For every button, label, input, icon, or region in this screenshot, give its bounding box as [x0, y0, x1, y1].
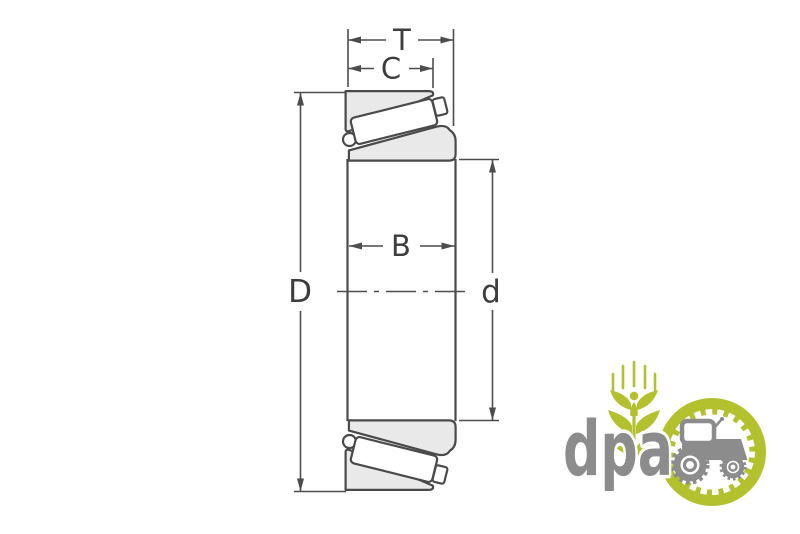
- brand-text: dpa: [563, 404, 673, 493]
- arrowhead-right: [420, 65, 433, 72]
- dimension-B: B: [349, 229, 455, 263]
- tractor-icon: [673, 417, 748, 483]
- arrowhead-right: [441, 37, 454, 44]
- dimension-d: d: [459, 160, 501, 421]
- arrowhead-left: [348, 37, 361, 44]
- arrowhead-right: [442, 243, 455, 250]
- arrowhead-bottom: [489, 408, 496, 421]
- label-cone-width: B: [391, 229, 411, 263]
- bearing-lower-half: [343, 420, 456, 490]
- screenshot-root: T C B D: [0, 0, 800, 534]
- arrowhead-left: [348, 65, 361, 72]
- dimension-C: C: [348, 52, 433, 89]
- arrowhead-top: [489, 160, 496, 173]
- dpa-logo: dpa: [563, 362, 761, 501]
- arrowhead-top: [297, 93, 304, 106]
- arrowhead-bottom: [297, 479, 304, 492]
- bearing-upper-half: [343, 91, 456, 161]
- label-bore-diameter: d: [481, 274, 501, 310]
- label-outer-diameter: D: [288, 274, 312, 310]
- arrowhead-left: [349, 243, 362, 250]
- bearing-diagram: T C B D: [0, 0, 800, 534]
- bore-section: [348, 159, 456, 421]
- label-cup-width: C: [381, 52, 401, 86]
